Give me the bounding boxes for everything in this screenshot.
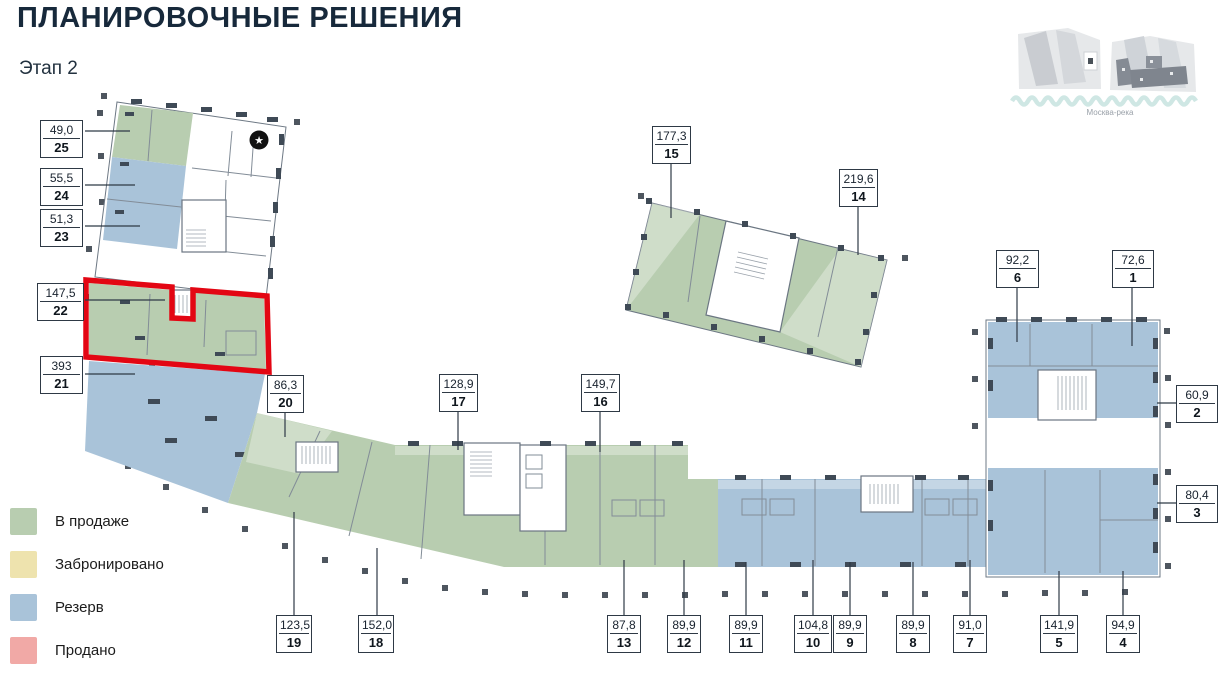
unit-area: 87,8 [610,618,638,634]
unit-label-12[interactable]: 89,9 12 [667,615,701,653]
unit-area: 89,9 [899,618,927,634]
site-minimap: Москва-река [1012,28,1196,117]
unit-area: 92,2 [999,253,1036,269]
unit-number: 5 [1043,634,1075,650]
unit-label-20[interactable]: 86,3 20 [267,375,304,413]
legend-swatch-sale [10,508,37,535]
unit-label-18[interactable]: 152,0 18 [358,615,394,653]
unit-label-15[interactable]: 177,3 15 [652,126,691,164]
unit-area: 94,9 [1109,618,1137,634]
unit-number: 15 [655,145,688,161]
unit-area: 393 [43,359,80,375]
unit-number: 3 [1179,504,1215,520]
building-right [986,317,1160,577]
unit-number: 18 [361,634,391,650]
star-marker: ★ [250,131,269,150]
unit-label-16[interactable]: 149,7 16 [581,374,620,412]
unit-label-22[interactable]: 147,5 22 [37,283,84,321]
legend-item-booked: Забронировано [10,551,164,578]
legend-label: Резерв [55,599,104,616]
unit-number: 1 [1115,269,1151,285]
legend-swatch-sold [10,637,37,664]
unit-number: 19 [279,634,309,650]
legend-swatch-booked [10,551,37,578]
unit-label-19[interactable]: 123,5 19 [276,615,312,653]
legend-item-sold: Продано [10,637,164,664]
star-marker-icon: ★ [254,135,264,147]
plan-page: ПЛАНИРОВОЧНЫЕ РЕШЕНИЯ Этап 2 [0,0,1223,659]
unit-label-13[interactable]: 87,8 13 [607,615,641,653]
unit-area: 219,6 [842,172,875,188]
legend-label: Забронировано [55,556,164,573]
unit-number: 9 [836,634,864,650]
river-icon [1012,98,1196,105]
unit-label-10[interactable]: 104,8 10 [794,615,832,653]
legend-label: Продано [55,642,116,659]
unit-area: 152,0 [361,618,391,634]
unit-number: 12 [670,634,698,650]
unit-number: 21 [43,375,80,391]
unit-label-2[interactable]: 60,9 2 [1176,385,1218,423]
unit-label-6[interactable]: 92,2 6 [996,250,1039,288]
unit-area: 147,5 [40,286,81,302]
legend-swatch-reserve [10,594,37,621]
unit-label-9[interactable]: 89,9 9 [833,615,867,653]
green-band [228,413,718,567]
unit-number: 16 [584,393,617,409]
unit-area: 55,5 [43,171,80,187]
unit-number: 23 [43,228,80,244]
unit-area: 177,3 [655,129,688,145]
unit-number: 2 [1179,404,1215,420]
unit-number: 6 [999,269,1036,285]
unit-number: 22 [40,302,81,318]
unit-label-3[interactable]: 80,4 3 [1176,485,1218,523]
unit-number: 11 [732,634,760,650]
unit-area: 128,9 [442,377,475,393]
unit-area: 51,3 [43,212,80,228]
unit-area: 141,9 [1043,618,1075,634]
unit-number: 25 [43,139,80,155]
unit-label-21[interactable]: 393 21 [40,356,83,394]
legend-label: В продаже [55,513,129,530]
building-middle [625,198,887,367]
unit-number: 20 [270,394,301,410]
unit-number: 4 [1109,634,1137,650]
unit-label-7[interactable]: 91,0 7 [953,615,987,653]
unit-area: 91,0 [956,618,984,634]
unit-area: 60,9 [1179,388,1215,404]
unit-area: 49,0 [43,123,80,139]
legend: В продаже Забронировано Резерв Продано [10,508,164,680]
unit-area: 72,6 [1115,253,1151,269]
unit-label-14[interactable]: 219,6 14 [839,169,878,207]
unit-area: 104,8 [797,618,829,634]
unit-area: 80,4 [1179,488,1215,504]
unit-area: 149,7 [584,377,617,393]
unit-label-24[interactable]: 55,5 24 [40,168,83,206]
unit-label-4[interactable]: 94,9 4 [1106,615,1140,653]
unit-label-11[interactable]: 89,9 11 [729,615,763,653]
unit-label-25[interactable]: 49,0 25 [40,120,83,158]
floor-plan: ★ [0,0,1223,659]
unit-number: 14 [842,188,875,204]
legend-item-sale: В продаже [10,508,164,535]
unit-number: 13 [610,634,638,650]
unit-number: 8 [899,634,927,650]
unit-label-23[interactable]: 51,3 23 [40,209,83,247]
unit-label-1[interactable]: 72,6 1 [1112,250,1154,288]
building-top-left [95,99,286,298]
unit-area: 89,9 [670,618,698,634]
unit-number: 7 [956,634,984,650]
unit-label-17[interactable]: 128,9 17 [439,374,478,412]
unit-label-8[interactable]: 89,9 8 [896,615,930,653]
unit-area: 123,5 [279,618,309,634]
blue-strip [718,475,1010,567]
river-caption: Москва-река [1087,108,1135,117]
unit-number: 24 [43,187,80,203]
unit-area: 89,9 [836,618,864,634]
unit-label-5[interactable]: 141,9 5 [1040,615,1078,653]
unit-area: 86,3 [270,378,301,394]
legend-item-reserve: Резерв [10,594,164,621]
unit-number: 10 [797,634,829,650]
unit-number: 17 [442,393,475,409]
unit-area: 89,9 [732,618,760,634]
